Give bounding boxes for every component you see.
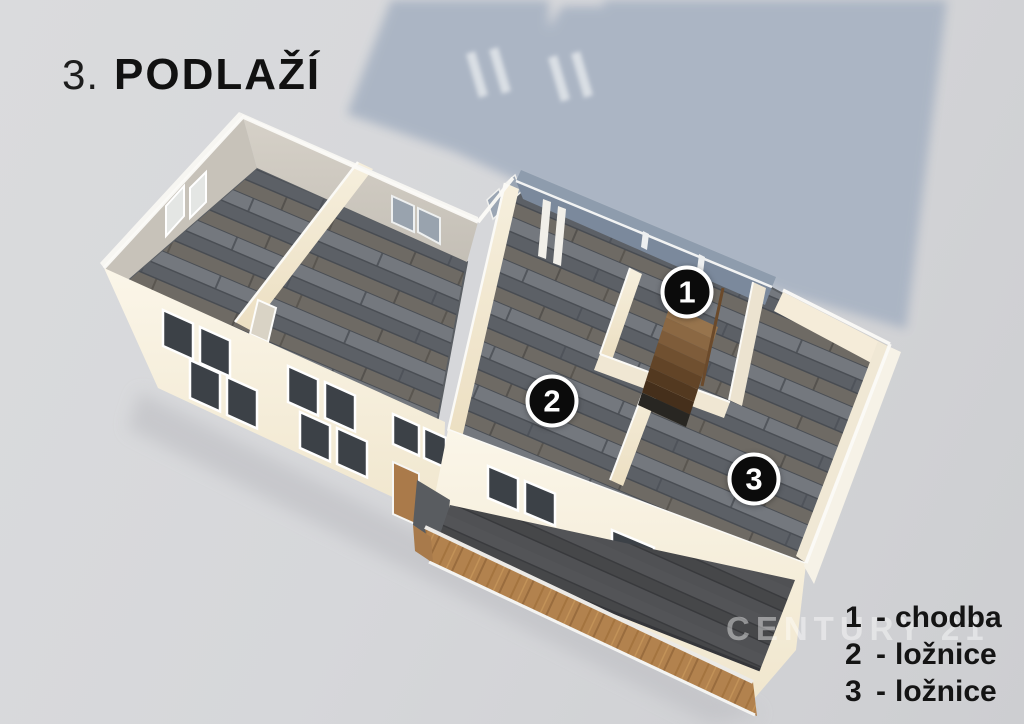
legend-item-loznice-3: 3 - ložnice (845, 675, 1002, 712)
legend-number: 3 (845, 675, 867, 709)
room-badge-1: 1 (661, 266, 714, 319)
room-legend: 1 - chodba 2 - ložnice 3 - ložnice (845, 601, 1002, 712)
floor-label: PODLAŽÍ (114, 50, 321, 100)
room-badge-1-number: 1 (678, 274, 695, 310)
room-badge-2: 2 (526, 375, 579, 428)
legend-item-loznice-2: 2 - ložnice (845, 638, 1002, 675)
legend-separator: - (876, 638, 886, 672)
legend-item-chodba: 1 - chodba (845, 601, 1002, 638)
floor-number: 3. (62, 51, 99, 99)
legend-separator: - (876, 675, 886, 709)
legend-label: ložnice (895, 675, 997, 709)
legend-number: 1 (845, 601, 867, 635)
page-title: 3. PODLAŽÍ (62, 50, 321, 100)
legend-separator: - (876, 601, 886, 635)
legend-number: 2 (845, 638, 867, 672)
room-badge-3-number: 3 (745, 461, 762, 497)
legend-label: chodba (895, 601, 1002, 635)
screenshot-root: 3. PODLAŽÍ 1 2 3 CENTURY 21 1 - chodba 2… (0, 0, 1024, 724)
room-badge-3: 3 (728, 453, 781, 506)
room-badge-2-number: 2 (543, 383, 560, 419)
legend-label: ložnice (895, 638, 997, 672)
